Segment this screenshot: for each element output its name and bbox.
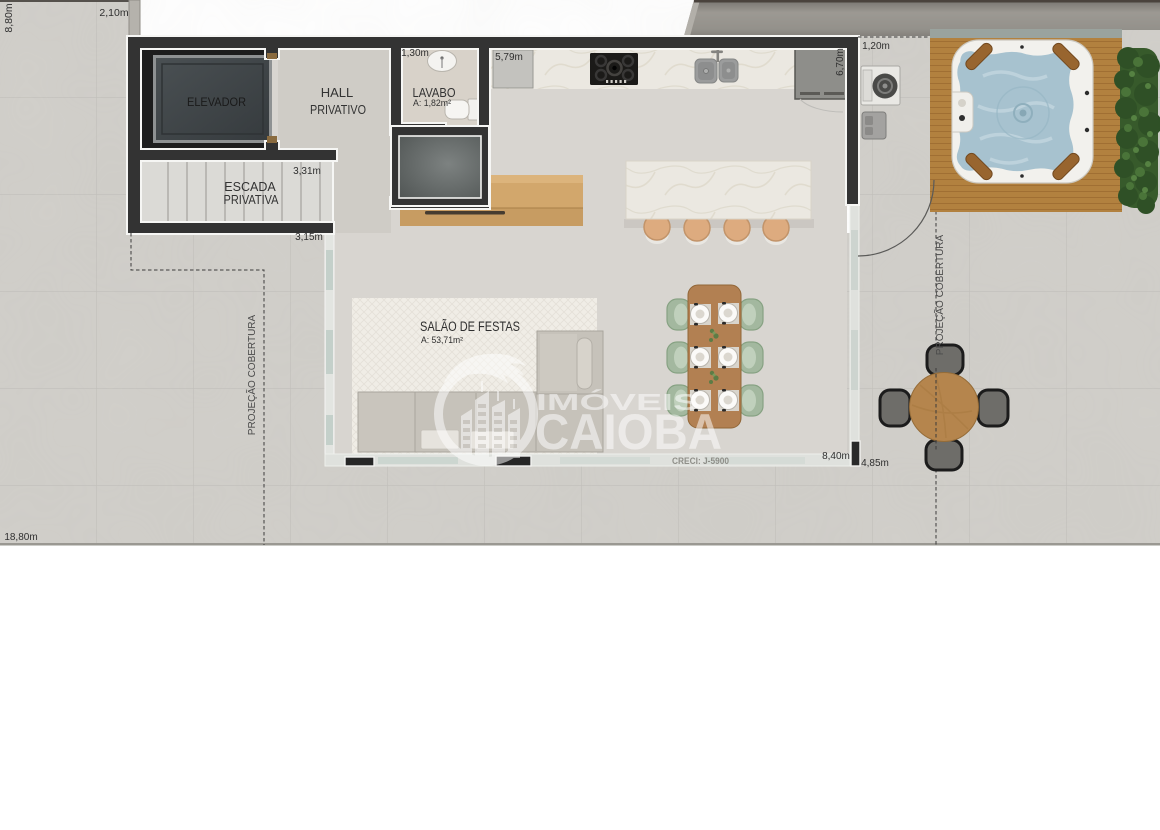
svg-text:2,10m: 2,10m bbox=[99, 7, 128, 19]
svg-text:A: 1,82m²: A: 1,82m² bbox=[413, 98, 451, 109]
svg-text:18,80m: 18,80m bbox=[4, 532, 37, 543]
svg-text:PROJEÇÃO COBERTURA: PROJEÇÃO COBERTURA bbox=[933, 234, 946, 355]
svg-text:5,79m: 5,79m bbox=[495, 52, 523, 63]
svg-text:1,20m: 1,20m bbox=[862, 41, 890, 52]
svg-text:CRECI: J-5900: CRECI: J-5900 bbox=[672, 456, 729, 467]
svg-text:8,40m: 8,40m bbox=[822, 451, 850, 462]
svg-text:ELEVADOR: ELEVADOR bbox=[187, 95, 246, 109]
svg-text:4,85m: 4,85m bbox=[861, 458, 889, 469]
svg-text:A: 53,71m²: A: 53,71m² bbox=[421, 335, 463, 345]
svg-text:SALÃO DE FESTAS: SALÃO DE FESTAS bbox=[420, 319, 520, 334]
svg-text:PRIVATIVA: PRIVATIVA bbox=[224, 193, 280, 207]
svg-text:3,31m: 3,31m bbox=[293, 166, 321, 177]
svg-text:6,70m: 6,70m bbox=[835, 48, 846, 76]
svg-text:PROJEÇÃO COBERTURA: PROJEÇÃO COBERTURA bbox=[245, 314, 258, 435]
svg-text:1,30m: 1,30m bbox=[401, 48, 429, 59]
svg-text:3,15m: 3,15m bbox=[295, 232, 323, 243]
svg-text:PRIVATIVO: PRIVATIVO bbox=[310, 102, 366, 117]
svg-text:8,80m: 8,80m bbox=[3, 3, 15, 32]
svg-text:CAIOBA: CAIOBA bbox=[535, 404, 722, 460]
svg-text:ESCADA: ESCADA bbox=[224, 180, 276, 194]
svg-text:HALL: HALL bbox=[321, 85, 354, 100]
